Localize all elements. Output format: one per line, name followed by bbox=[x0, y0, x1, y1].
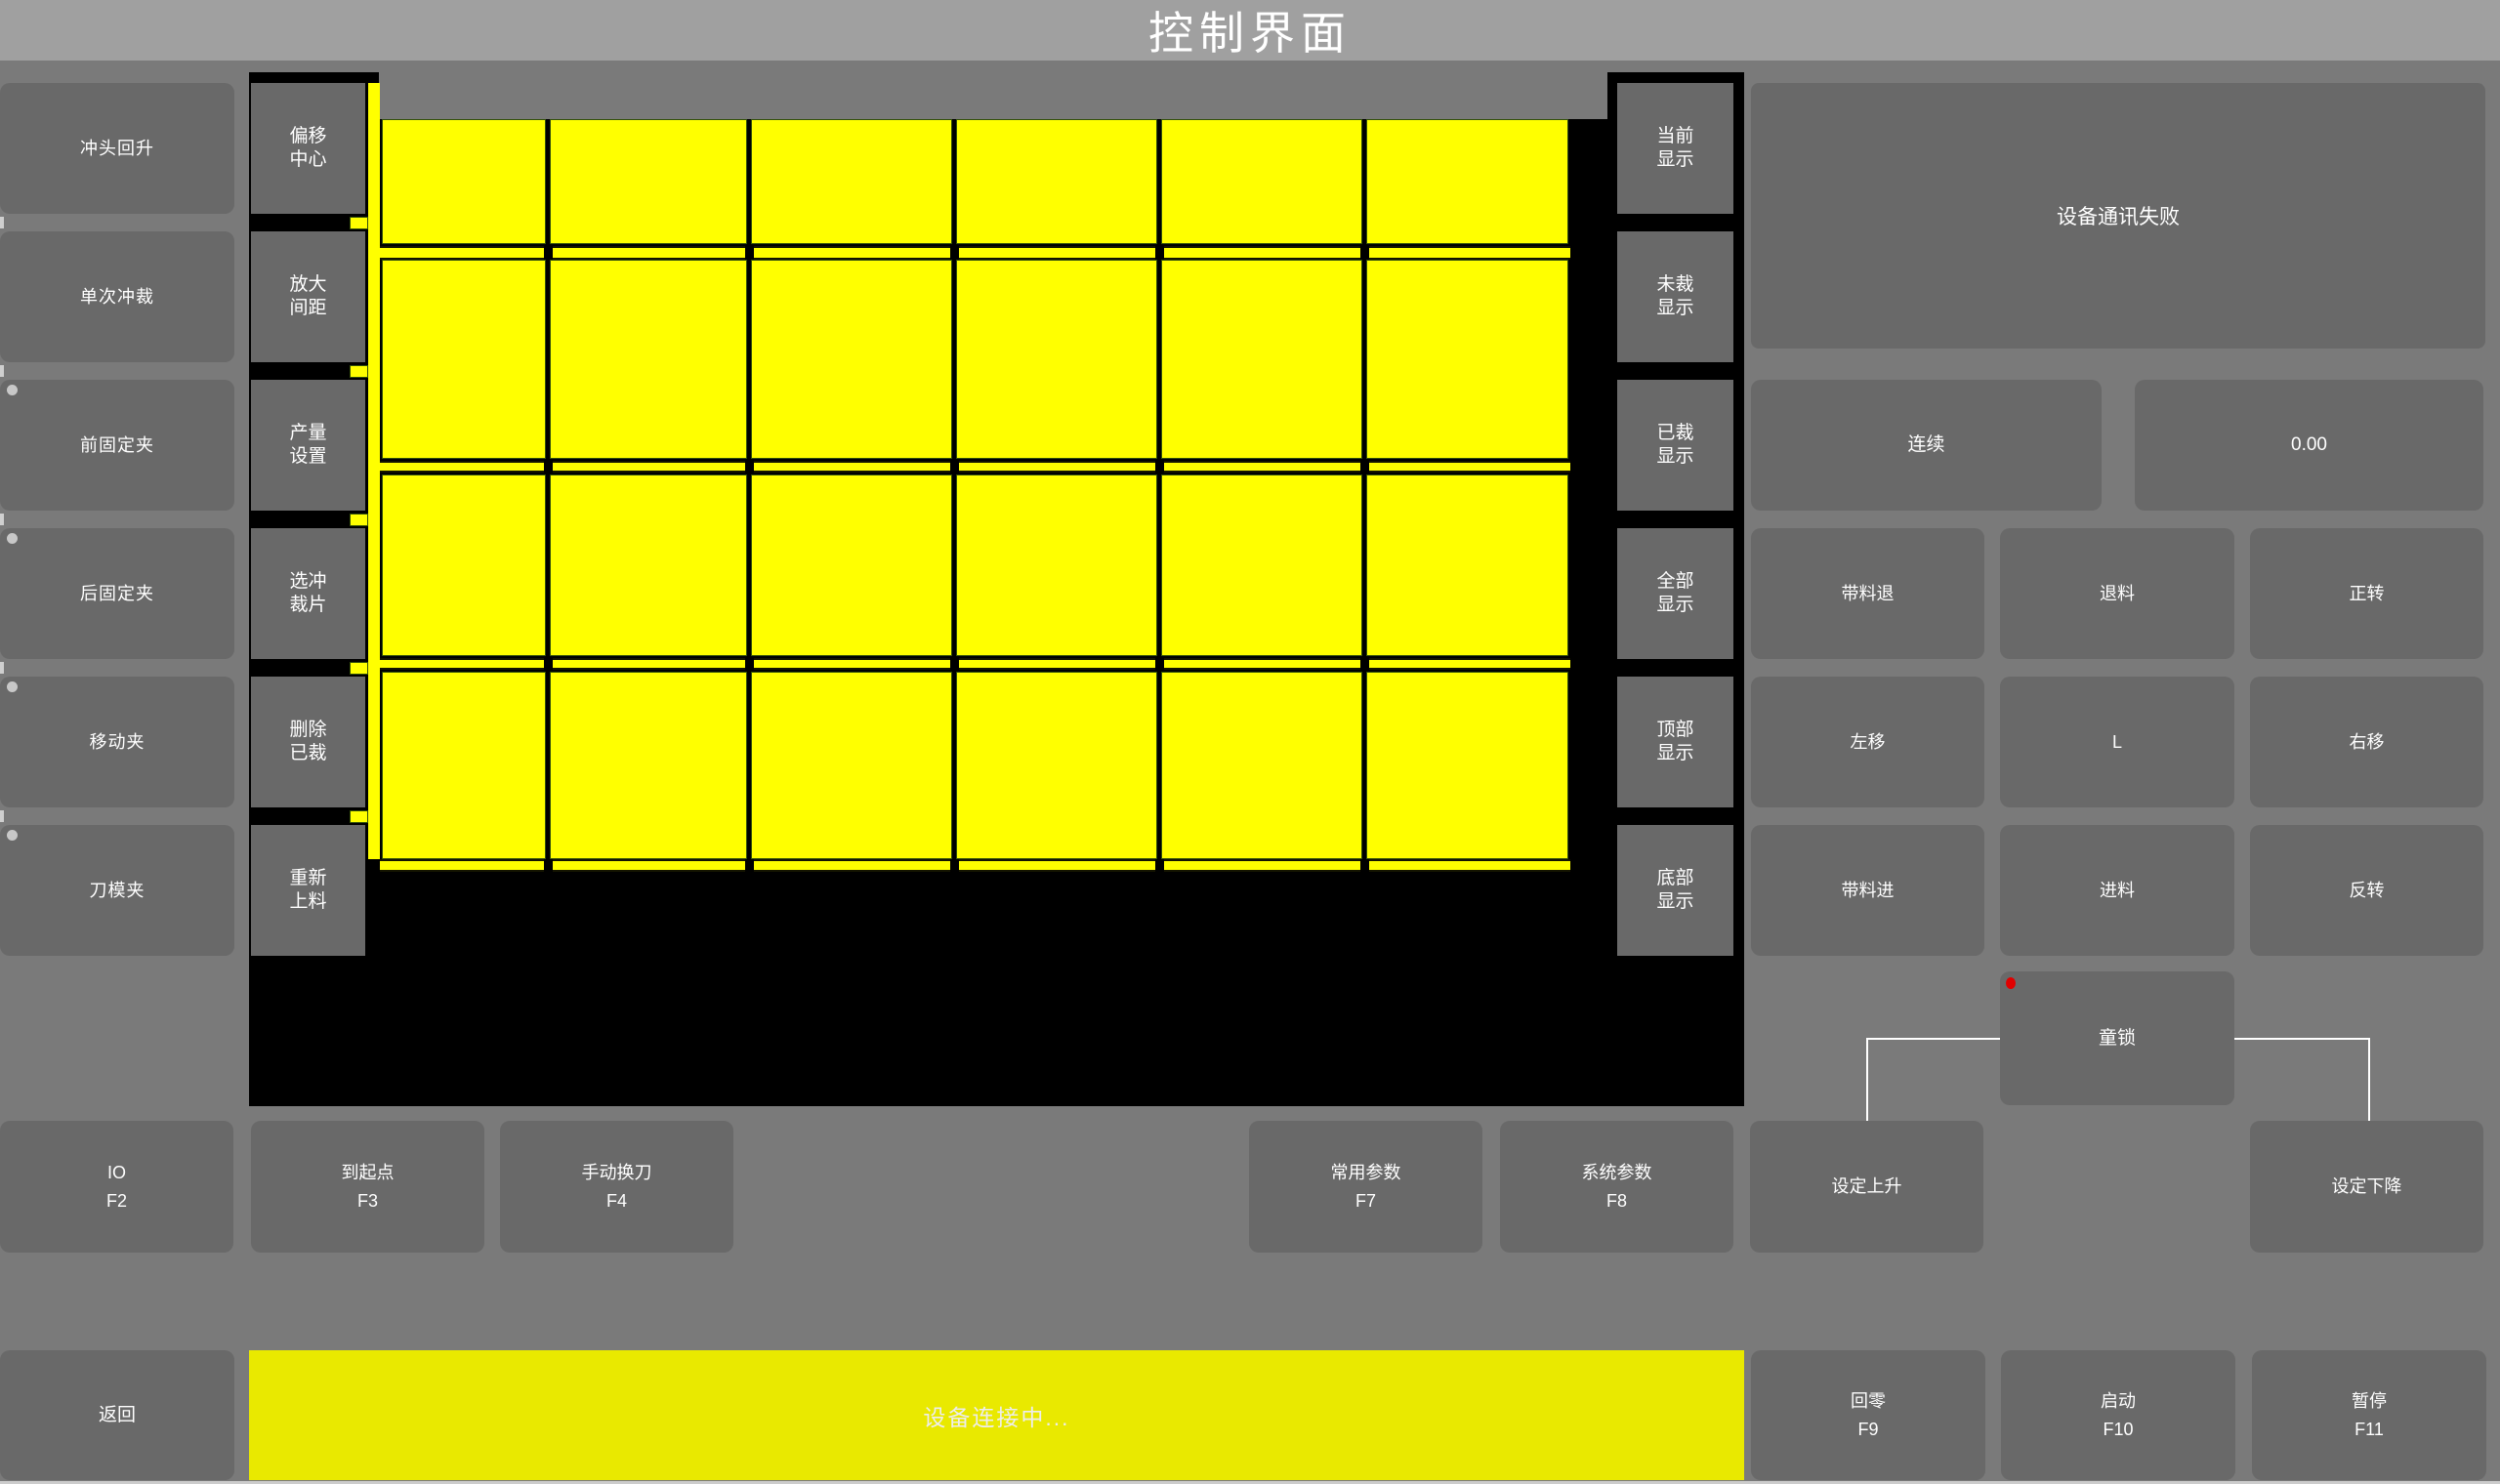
connection-status-bar: 设备连接中... bbox=[249, 1350, 1744, 1480]
pause-button[interactable]: 暂停F11 bbox=[2252, 1350, 2486, 1480]
separator-tick bbox=[544, 859, 553, 872]
fkey-label: F11 bbox=[2354, 1419, 2384, 1441]
separator-tick bbox=[1360, 246, 1369, 260]
button-label: 手动换刀 bbox=[582, 1162, 652, 1184]
edge-tick bbox=[0, 365, 4, 377]
button-label: 到起点 bbox=[342, 1162, 395, 1184]
all-display-button[interactable]: 全部 显示 bbox=[1617, 528, 1733, 659]
fkey-label: F2 bbox=[106, 1190, 127, 1213]
separator-tick bbox=[544, 461, 553, 473]
separator-tick bbox=[1360, 461, 1369, 473]
manual-tool-change-button[interactable]: 手动换刀F4 bbox=[500, 1121, 733, 1253]
sheet-cell[interactable] bbox=[751, 672, 952, 859]
sheet-cell[interactable] bbox=[1161, 474, 1362, 656]
back-button[interactable]: 返回 bbox=[0, 1350, 234, 1480]
page-title: 控制界面 bbox=[1148, 0, 1352, 62]
separator-tick bbox=[1360, 658, 1369, 670]
continuous-mode-button[interactable]: 连续 bbox=[1751, 380, 2102, 511]
sheet-cell[interactable] bbox=[1366, 474, 1568, 656]
sheet-cell[interactable] bbox=[956, 119, 1157, 244]
separator-tick bbox=[745, 658, 754, 670]
button-label: 回零 bbox=[1851, 1390, 1886, 1413]
common-params-button[interactable]: 常用参数F7 bbox=[1249, 1121, 1482, 1253]
button-label: 暂停 bbox=[2352, 1390, 2387, 1413]
offset-center-button[interactable]: 偏移 中心 bbox=[251, 83, 365, 214]
separator-tick bbox=[950, 461, 959, 473]
sheet-cell[interactable] bbox=[751, 474, 952, 656]
title-bar: 控制界面 bbox=[0, 0, 2500, 61]
bracket-line bbox=[1866, 1038, 2000, 1040]
button-label: 设定上升 bbox=[1832, 1175, 1902, 1198]
sheet-cell[interactable] bbox=[956, 260, 1157, 459]
sheet-edge-tab bbox=[350, 365, 368, 378]
current-display-button[interactable]: 当前 显示 bbox=[1617, 83, 1733, 214]
connection-status-message: 设备连接中... bbox=[923, 1399, 1069, 1432]
sheet-cell[interactable] bbox=[550, 260, 747, 459]
set-rise-button[interactable]: 设定上升 bbox=[1750, 1121, 1983, 1253]
sheet-canvas bbox=[249, 72, 1744, 1106]
clamp-indicator-dot bbox=[7, 533, 18, 544]
child-lock-red-indicator bbox=[2006, 977, 2016, 989]
move-left-button[interactable]: 左移 bbox=[1751, 677, 1984, 807]
sheet-cell[interactable] bbox=[1366, 672, 1568, 859]
strip-back-button[interactable]: 带料退 bbox=[1751, 528, 1984, 659]
separator-tick bbox=[745, 859, 754, 872]
edge-tick bbox=[0, 217, 4, 228]
unload-button[interactable]: 退料 bbox=[2000, 528, 2234, 659]
sheet-cell[interactable] bbox=[382, 474, 546, 656]
forward-rotation-button[interactable]: 正转 bbox=[2250, 528, 2483, 659]
sheet-cell[interactable] bbox=[550, 672, 747, 859]
sheet-cell[interactable] bbox=[1161, 260, 1362, 459]
sheet-cell[interactable] bbox=[956, 474, 1157, 656]
fkey-label: F9 bbox=[1857, 1419, 1878, 1441]
set-fall-button[interactable]: 设定下降 bbox=[2250, 1121, 2483, 1253]
separator-tick bbox=[1155, 461, 1164, 473]
device-status-panel: 设备通讯失败 bbox=[1751, 83, 2485, 349]
fkey-label: F4 bbox=[606, 1190, 627, 1213]
canvas-top-band bbox=[379, 72, 1607, 119]
button-label: 启动 bbox=[2101, 1390, 2136, 1413]
clamp-indicator-dot bbox=[7, 385, 18, 395]
sheet-cell[interactable] bbox=[1161, 672, 1362, 859]
sheet-edge-tab bbox=[350, 217, 368, 229]
bracket-line bbox=[2234, 1038, 2368, 1040]
edge-tick bbox=[0, 810, 4, 822]
sheet-edge-tab bbox=[350, 810, 368, 823]
child-lock-button[interactable]: 童锁 bbox=[2000, 971, 2234, 1105]
separator-tick bbox=[1155, 658, 1164, 670]
separator-tick bbox=[950, 246, 959, 260]
single-punch-button[interactable]: 单次冲裁 bbox=[0, 231, 234, 362]
sheet-cell[interactable] bbox=[1161, 119, 1362, 244]
fkey-label: F7 bbox=[1355, 1190, 1376, 1213]
select-piece-button[interactable]: 选冲 裁片 bbox=[251, 528, 365, 659]
control-screen: 控制界面 冲头回升单次冲裁前固定夹后固定夹移动夹刀模夹 偏移 中心放大 间距产量… bbox=[0, 0, 2500, 1484]
sheet-cell[interactable] bbox=[751, 119, 952, 244]
button-label: 系统参数 bbox=[1582, 1162, 1652, 1184]
sheet-cell[interactable] bbox=[382, 119, 546, 244]
fkey-label: F3 bbox=[357, 1190, 378, 1213]
sheet-cell[interactable] bbox=[382, 260, 546, 459]
button-label: 常用参数 bbox=[1331, 1162, 1401, 1184]
piece-grid bbox=[380, 119, 1570, 872]
sheet-cell[interactable] bbox=[550, 474, 747, 656]
sheet-edge-strip bbox=[368, 83, 380, 859]
uncut-display-button[interactable]: 未裁 显示 bbox=[1617, 231, 1733, 362]
separator-tick bbox=[544, 658, 553, 670]
home-zero-button[interactable]: 回零F9 bbox=[1751, 1350, 1985, 1480]
sheet-cell[interactable] bbox=[550, 119, 747, 244]
row-separator-band bbox=[380, 859, 1570, 872]
separator-tick bbox=[544, 246, 553, 260]
device-status-message: 设备通讯失败 bbox=[2057, 201, 2180, 230]
reverse-rotation-button[interactable]: 反转 bbox=[2250, 825, 2483, 956]
l-button[interactable]: L bbox=[2000, 677, 2234, 807]
clamp-indicator-dot bbox=[7, 681, 18, 692]
separator-tick bbox=[745, 246, 754, 260]
sheet-edge-tab bbox=[350, 662, 368, 675]
separator-tick bbox=[745, 461, 754, 473]
separator-tick bbox=[950, 658, 959, 670]
system-params-button[interactable]: 系统参数F8 bbox=[1500, 1121, 1733, 1253]
row-separator-band bbox=[380, 461, 1570, 473]
bracket-line bbox=[1866, 1038, 1868, 1121]
edge-tick bbox=[0, 662, 4, 674]
rear-fixed-clamp-button[interactable]: 后固定夹 bbox=[0, 528, 234, 659]
sheet-cell[interactable] bbox=[751, 260, 952, 459]
separator-tick bbox=[950, 859, 959, 872]
row-separator-band bbox=[380, 246, 1570, 260]
clamp-indicator-dot bbox=[7, 830, 18, 841]
knife-die-clamp-button[interactable]: 刀模夹 bbox=[0, 825, 234, 956]
strip-forward-button[interactable]: 带料进 bbox=[1751, 825, 1984, 956]
top-display-button[interactable]: 顶部 显示 bbox=[1617, 677, 1733, 807]
reload-material-button[interactable]: 重新 上料 bbox=[251, 825, 365, 956]
bracket-line bbox=[2368, 1038, 2370, 1121]
yield-setting-button[interactable]: 产量 设置 bbox=[251, 380, 365, 511]
sheet-cell[interactable] bbox=[382, 672, 546, 859]
enlarge-spacing-button[interactable]: 放大 间距 bbox=[251, 231, 365, 362]
front-fixed-clamp-button[interactable]: 前固定夹 bbox=[0, 380, 234, 511]
button-label: IO bbox=[107, 1162, 126, 1184]
sheet-edge-tab bbox=[350, 514, 368, 526]
button-label: 设定下降 bbox=[2332, 1175, 2402, 1198]
to-origin-button[interactable]: 到起点F3 bbox=[251, 1121, 484, 1253]
punch-return-button[interactable]: 冲头回升 bbox=[0, 83, 234, 214]
io-button[interactable]: IOF2 bbox=[0, 1121, 233, 1253]
edge-tick bbox=[0, 514, 4, 525]
moving-clamp-button[interactable]: 移动夹 bbox=[0, 677, 234, 807]
value-display-button[interactable]: 0.00 bbox=[2135, 380, 2483, 511]
separator-tick bbox=[1155, 859, 1164, 872]
separator-tick bbox=[1155, 246, 1164, 260]
fkey-label: F8 bbox=[1606, 1190, 1627, 1213]
cut-display-button[interactable]: 已裁 显示 bbox=[1617, 380, 1733, 511]
child-lock-label: 童锁 bbox=[2099, 1027, 2136, 1051]
sheet-cell[interactable] bbox=[1366, 119, 1568, 244]
feed-button[interactable]: 进料 bbox=[2000, 825, 2234, 956]
start-button[interactable]: 启动F10 bbox=[2001, 1350, 2235, 1480]
fkey-label: F10 bbox=[2103, 1419, 2133, 1441]
sheet-cell[interactable] bbox=[956, 672, 1157, 859]
separator-tick bbox=[1360, 859, 1369, 872]
sheet-cell[interactable] bbox=[1366, 260, 1568, 459]
bottom-display-button[interactable]: 底部 显示 bbox=[1617, 825, 1733, 956]
move-right-button[interactable]: 右移 bbox=[2250, 677, 2483, 807]
row-separator-band bbox=[380, 658, 1570, 670]
delete-cut-button[interactable]: 删除 已裁 bbox=[251, 677, 365, 807]
